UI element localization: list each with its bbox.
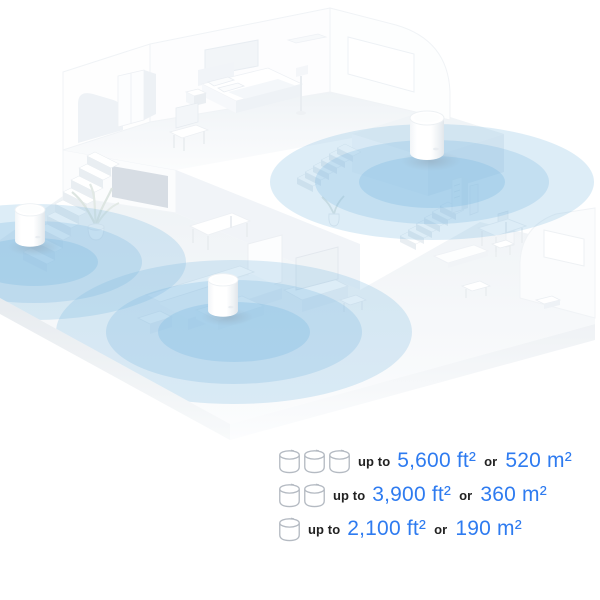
or-label: or [459, 488, 472, 503]
metric-area-value: 520 m² [505, 449, 572, 473]
up-to-label: up to [308, 522, 340, 537]
unit-icons [278, 516, 301, 543]
metric-area-value: 190 m² [455, 517, 522, 541]
unit-icons [278, 482, 326, 509]
legend-row-1-unit: up to 2,100 ft² or 190 m² [278, 514, 572, 544]
unit-icons [278, 448, 351, 475]
deco-unit-icon [278, 448, 301, 475]
legend-row-2-units: up to 3,900 ft² or 360 m² [278, 480, 572, 510]
up-to-label: up to [333, 488, 365, 503]
deco-unit-icon [328, 448, 351, 475]
deco-unit-bottom [208, 274, 238, 317]
up-to-label: up to [358, 454, 390, 469]
house-illustration [0, 0, 600, 445]
legend-row-3-units: up to 5,600 ft² or 520 m² [278, 446, 572, 476]
deco-unit-icon [303, 448, 326, 475]
page: up to 5,600 ft² or 520 m² up to 3,900 ft… [0, 0, 600, 600]
imperial-area-value: 5,600 ft² [397, 449, 476, 473]
deco-unit-top [410, 111, 444, 160]
metric-area-value: 360 m² [480, 483, 547, 507]
or-label: or [434, 522, 447, 537]
deco-unit-icon [278, 516, 301, 543]
deco-unit-icon [278, 482, 301, 509]
or-label: or [484, 454, 497, 469]
coverage-legend: up to 5,600 ft² or 520 m² up to 3,900 ft… [278, 446, 572, 544]
imperial-area-value: 2,100 ft² [347, 517, 426, 541]
imperial-area-value: 3,900 ft² [372, 483, 451, 507]
deco-unit-left [15, 204, 45, 247]
deco-unit-icon [303, 482, 326, 509]
